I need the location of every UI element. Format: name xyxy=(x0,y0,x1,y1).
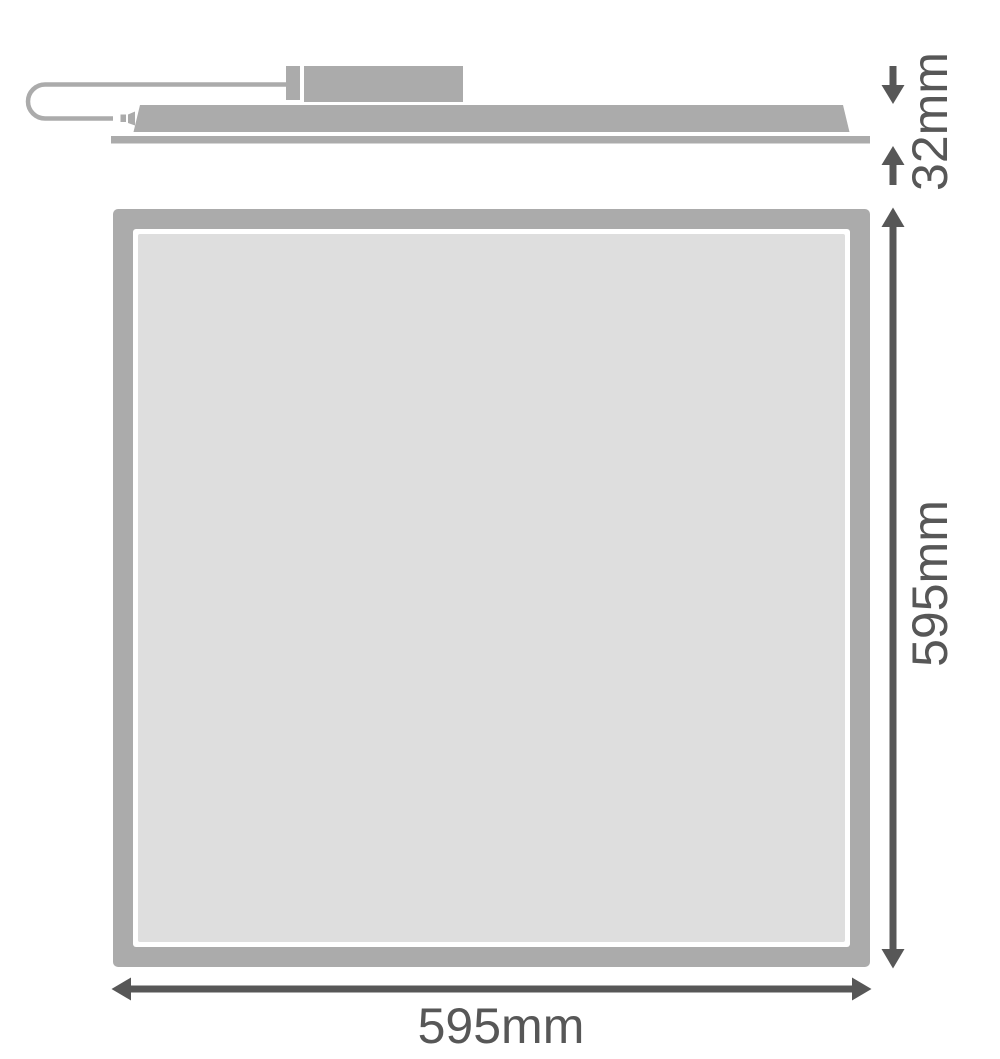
side-length-arrow-down-icon xyxy=(882,949,905,969)
panel-face-edge xyxy=(111,136,870,144)
height-arrow-down-shaft xyxy=(890,66,897,87)
drawing-canvas: 32mm 595mm 595mm xyxy=(0,0,1000,1059)
plug-body xyxy=(128,112,135,126)
driver-terminal-block xyxy=(286,66,300,100)
plug-connector xyxy=(121,115,127,123)
panel-body-side xyxy=(134,105,850,132)
side-length-arrow-up-icon xyxy=(882,208,905,228)
width-arrow-left-icon xyxy=(112,978,132,1001)
side-length-dimension-label: 595mm xyxy=(902,500,958,667)
height-dimension: 32mm xyxy=(882,52,959,191)
front-view xyxy=(113,209,870,967)
width-dimension: 595mm xyxy=(112,978,872,1055)
side-view xyxy=(28,66,870,144)
height-dimension-label: 32mm xyxy=(902,52,958,191)
dimension-drawing: 32mm 595mm 595mm xyxy=(0,0,1000,1059)
width-arrow-right-icon xyxy=(852,978,872,1001)
panel-diffuser xyxy=(138,234,845,942)
width-dimension-label: 595mm xyxy=(418,998,585,1054)
height-arrow-up-shaft xyxy=(890,164,897,185)
driver-box xyxy=(304,66,463,102)
side-length-dimension: 595mm xyxy=(882,208,959,969)
